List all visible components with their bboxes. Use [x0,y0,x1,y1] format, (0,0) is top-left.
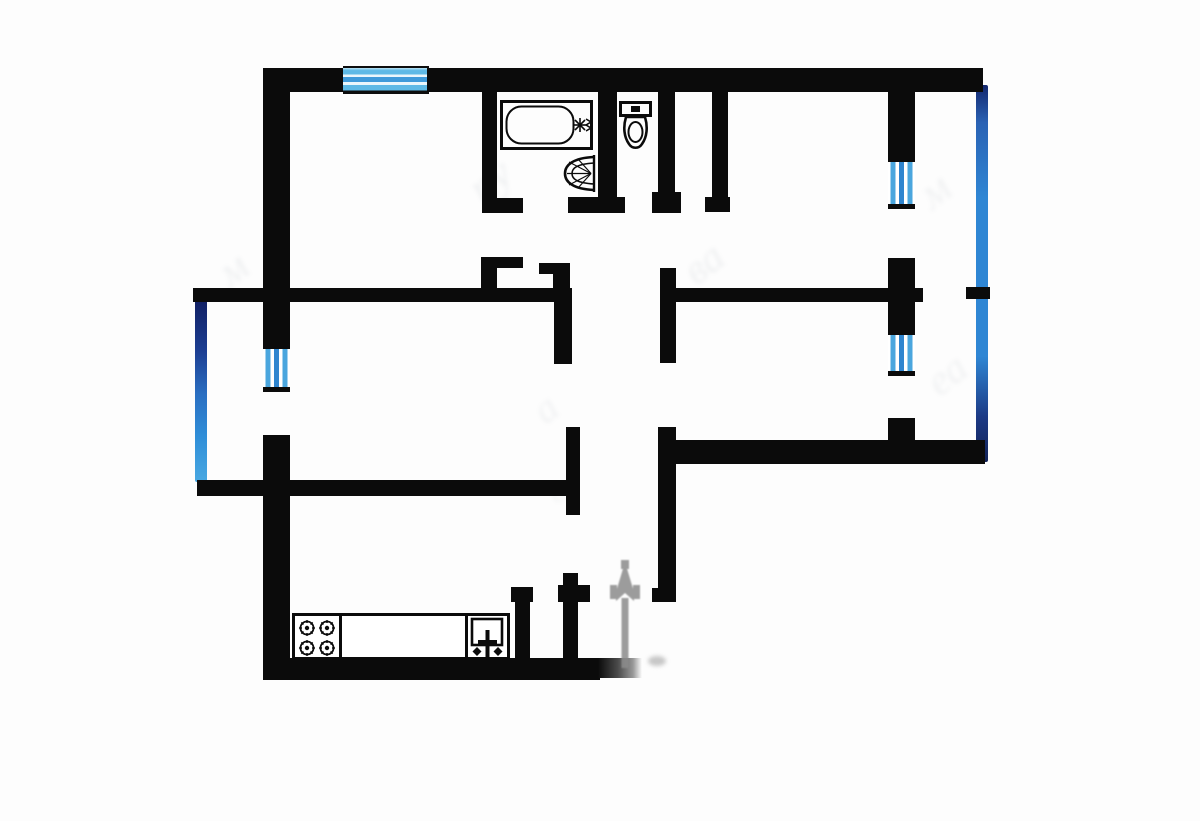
right-room-bottom-wall [658,440,985,464]
right-balcony-wall-stub [888,418,915,444]
watermark-letter: м [908,136,1006,234]
right-balcony-wall-top [888,83,915,160]
toilet [619,101,652,154]
bathroom-left-wall [482,92,497,198]
room-door-jamb-right-stub [553,263,570,288]
right-balcony-wall-mid [888,258,915,333]
kitchen-sink [470,617,504,660]
left-exterior-wall-lower [263,435,290,680]
larder-jamb-flare [511,587,533,602]
right-glazing-tick [966,287,990,299]
watermark-letter: еа [917,319,1023,423]
bathroom-right-door-foot [568,197,625,213]
right-balcony-window-1 [888,157,915,209]
bathroom-sink [560,153,597,194]
stove-burners [295,616,339,660]
corridor-left-wall-mid [566,427,580,515]
room-door-jamb-left-arm [497,257,523,268]
kitchen-top-wall [197,480,580,496]
top-wall-window [343,66,429,94]
left-balcony-glazing [195,300,207,482]
counter-divider-sink [465,616,468,660]
bathroom-left-door-foot [482,198,523,213]
corridor-right-wall-foot [652,588,676,602]
corridor-left-wall-bottom-flare [558,585,590,602]
corridor-right-wall-top [660,268,676,363]
left-balcony-window [263,344,290,392]
bathtub [500,100,593,150]
closet-right-door-foot [705,197,730,212]
floor-plan-canvas: пувамаеамв [0,0,1200,821]
entry-smudge [648,656,666,666]
right-balcony-glazing [976,85,988,462]
corridor-left-wall-top [554,288,572,364]
left-exterior-wall-upper [263,68,290,346]
right-rooms-divider-wall [676,288,923,302]
toilet-right-door-foot [652,192,681,213]
toilet-right-wall [658,85,675,192]
room-door-jamb-left-stub [481,257,497,288]
bathroom-right-wall [598,85,617,197]
closet-right-wall [712,92,728,197]
kitchen-bottom-wall [263,658,600,680]
right-balcony-window-2 [888,330,915,376]
upper-left-room-bottom-wall [193,288,570,302]
entry-arrow [604,558,646,672]
room-door-jamb-right-arm [539,263,553,274]
counter-divider-stove [339,616,342,660]
